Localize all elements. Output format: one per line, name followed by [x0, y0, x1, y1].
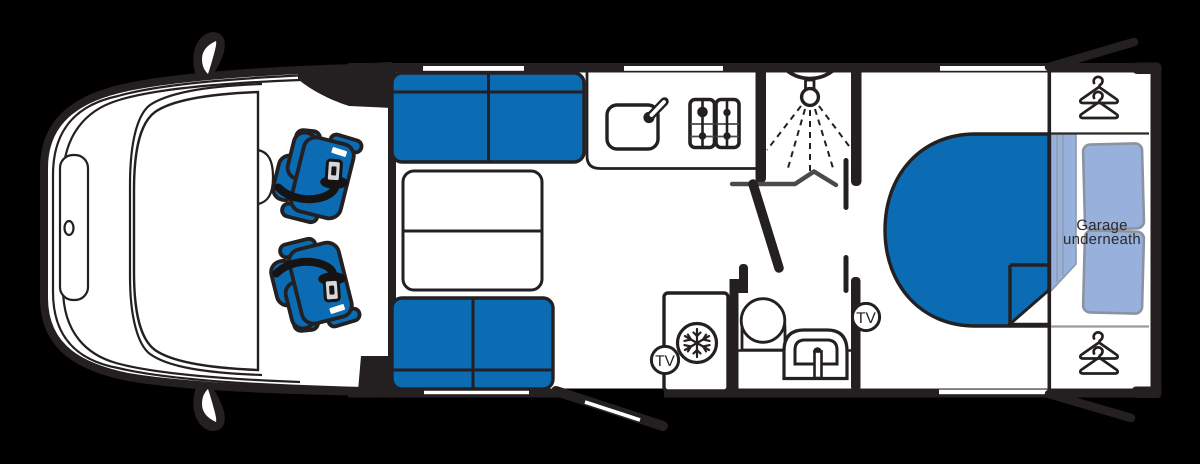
- svg-text:TV: TV: [856, 310, 876, 327]
- svg-text:underneath: underneath: [1063, 231, 1141, 248]
- svg-text:TV: TV: [655, 353, 675, 370]
